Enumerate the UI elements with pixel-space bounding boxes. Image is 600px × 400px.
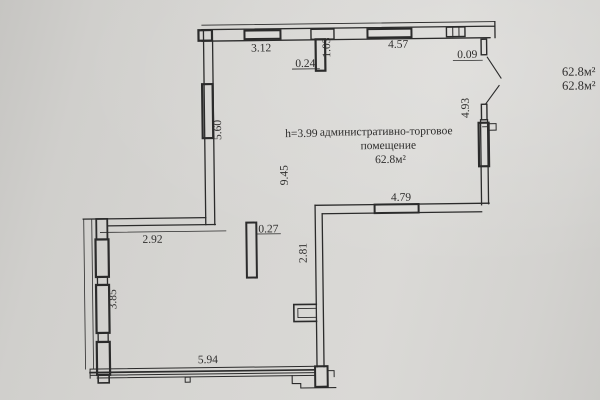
bottom-right-pier [315, 366, 328, 387]
step-wall-thin-line [100, 231, 225, 233]
window-symbol-mid [375, 204, 419, 213]
parapet-lines [84, 220, 94, 370]
column-symbol [246, 223, 257, 278]
top-wall [198, 22, 495, 73]
dim-right-lower-wall: 2.81 [298, 243, 310, 264]
dim-top-window-span: 3.12 [251, 42, 272, 54]
dim-top-right-span: 4.57 [388, 39, 409, 51]
top-left-corner-pier [198, 30, 212, 41]
dim-pier-length: 1.03 [321, 37, 333, 58]
entry-opening [481, 57, 502, 130]
top-wall-outer-line [202, 22, 495, 26]
dim-top-corner-gap: 0.09 [457, 49, 478, 61]
entry-diagonal-walls [485, 57, 501, 104]
scanned-floor-plan-photo: 3.12 0.24 1.03 4.57 0.09 4.93 5.60 9.45 … [0, 0, 600, 400]
right-lower-wall-lines [315, 205, 324, 367]
dim-right-upper-wall: 4.93 [460, 98, 472, 119]
window-symbol-top-2 [367, 29, 411, 38]
window-top-3-mullions [453, 27, 459, 37]
room-area-label: 62.8м² [375, 154, 407, 166]
window-symbol-top-3 [446, 27, 465, 37]
left-wall-top-block [96, 219, 107, 240]
dim-mid-wall: 4.79 [391, 192, 412, 204]
free-column [246, 223, 257, 278]
step-wall-lines [83, 218, 215, 227]
window-symbol-left-3 [97, 342, 110, 375]
bottom-wall [90, 366, 327, 383]
right-upper-wall [479, 120, 490, 205]
dim-pier-width: 0.24 [295, 58, 316, 70]
window-symbol-top-1 [244, 30, 280, 39]
left-wall-divider-1 [97, 277, 107, 285]
bottom-mullion-tick [185, 377, 190, 382]
entrance-step [292, 375, 336, 388]
dim-room-depth: 9.45 [279, 165, 291, 186]
dim-column-width: 0.27 [258, 223, 279, 235]
wall-niche-inner [298, 308, 317, 317]
wall-niche-outer [294, 304, 317, 321]
side-area-note-line2: 62.8м² [562, 78, 596, 92]
dim-left-lower-wall: 3.85 [107, 289, 119, 310]
bottom-glazing-main-line [90, 370, 315, 373]
floor-plan-drawing: 3.12 0.24 1.03 4.57 0.09 4.93 5.60 9.45 … [0, 0, 600, 400]
entry-jamb-segment [481, 104, 487, 120]
dim-step-wall: 2.92 [142, 234, 163, 246]
left-wall-divider-2 [98, 333, 108, 342]
ceiling-height-note: h=3.99 [285, 128, 318, 140]
right-lower-wall [293, 205, 324, 367]
left-wall-end-block [98, 375, 109, 383]
corner-gap-segment [481, 39, 487, 55]
mid-wall [315, 203, 489, 214]
window-symbol-left-1 [95, 239, 108, 277]
dim-bottom-wall: 5.94 [198, 354, 219, 366]
room-name-line1: административно-торговое [320, 125, 453, 139]
right-upper-wall-lines [481, 120, 489, 205]
room-name-line2: помещение [361, 140, 417, 153]
side-area-note-line1: 62.8м² [562, 64, 596, 78]
dim-left-upper-wall: 5.60 [212, 120, 224, 141]
